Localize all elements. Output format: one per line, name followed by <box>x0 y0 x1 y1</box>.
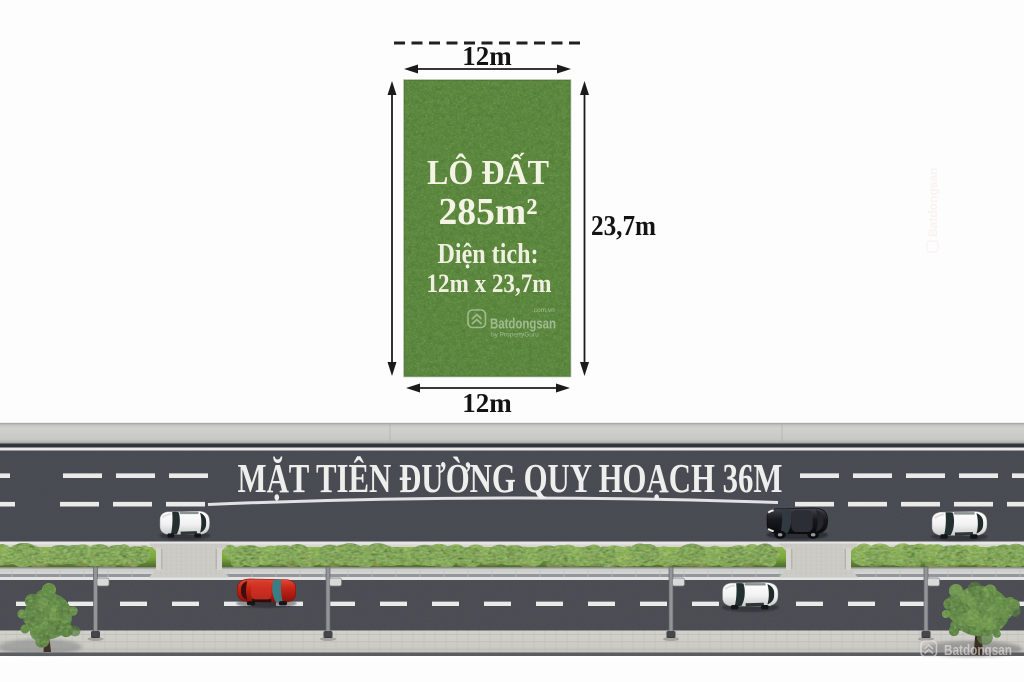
svg-text:Batdongsan: Batdongsan <box>944 642 1012 659</box>
svg-text:12m: 12m <box>462 41 512 71</box>
svg-text:285m²: 285m² <box>439 191 538 233</box>
svg-text:.com.vn: .com.vn <box>532 307 555 314</box>
svg-text:23,7m: 23,7m <box>591 210 656 242</box>
svg-text:Batdongsan: Batdongsan <box>926 168 940 237</box>
svg-text:12m: 12m <box>462 388 512 418</box>
svg-text:MẶT TIÊN ĐƯỜNG QUY HOẠCH 36M: MẶT TIÊN ĐƯỜNG QUY HOẠCH 36M <box>238 455 783 501</box>
svg-text:Diện tich:: Diện tich: <box>438 239 539 270</box>
svg-text:by PropertyGuru: by PropertyGuru <box>491 332 539 339</box>
svg-text:LÔ ĐẤT: LÔ ĐẤT <box>427 152 549 192</box>
svg-text:12m x 23,7m: 12m x 23,7m <box>427 269 552 298</box>
svg-text:Batdongsan: Batdongsan <box>490 316 556 333</box>
